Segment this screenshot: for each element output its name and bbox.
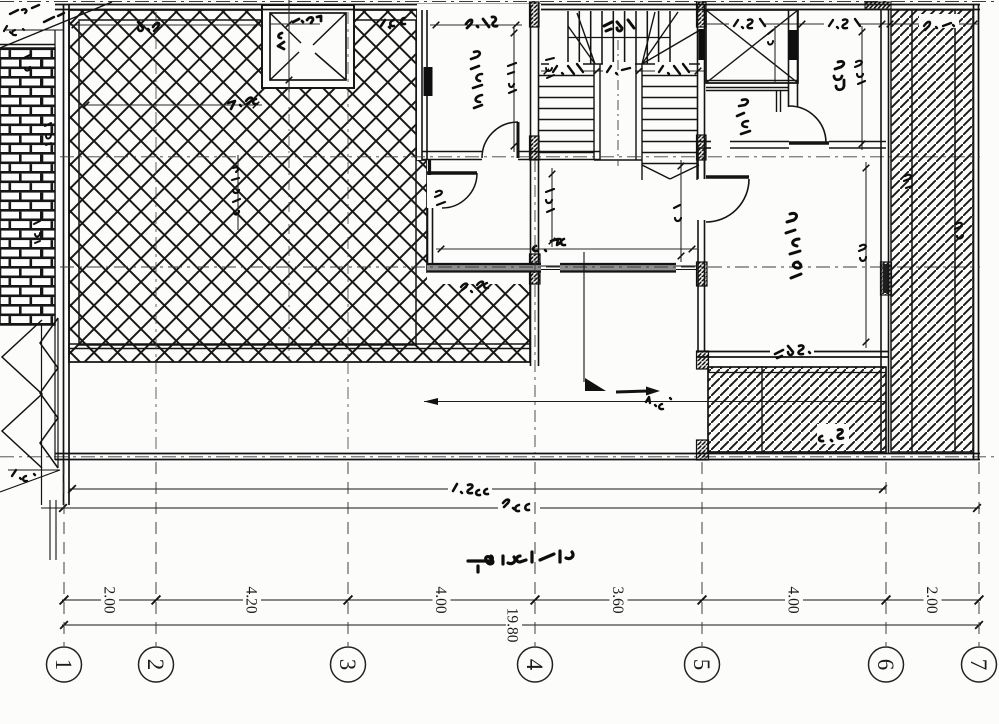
svg-text:4: 4	[522, 659, 547, 671]
svg-text:4.00: 4.00	[785, 586, 802, 613]
svg-text:3: 3	[335, 659, 360, 671]
svg-text:2.00: 2.00	[923, 586, 940, 613]
svg-text:2.00: 2.00	[101, 586, 118, 613]
svg-text:1: 1	[51, 659, 76, 671]
svg-text:6: 6	[873, 659, 898, 671]
svg-text:4.00: 4.00	[432, 586, 449, 613]
svg-text:19.80: 19.80	[504, 608, 521, 643]
svg-text:7: 7	[966, 659, 991, 671]
svg-text:3.60: 3.60	[609, 586, 626, 613]
svg-text:5: 5	[689, 659, 714, 671]
svg-text:4.20: 4.20	[243, 586, 260, 613]
svg-text:2: 2	[143, 659, 168, 671]
